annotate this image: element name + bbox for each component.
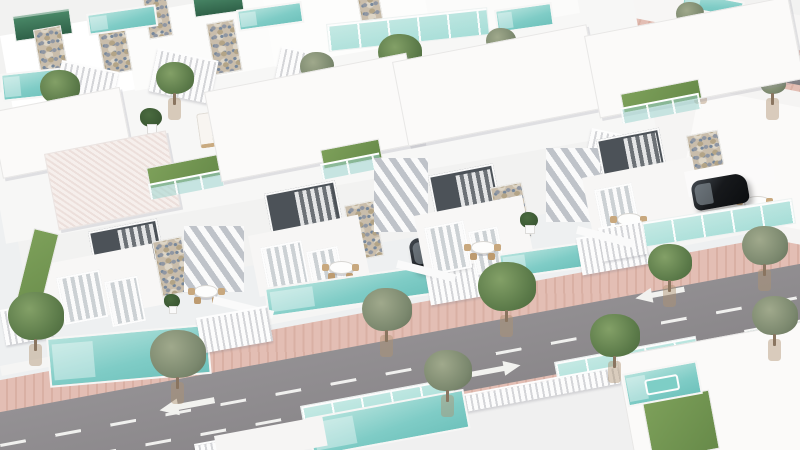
street-tree	[150, 330, 206, 378]
street-tree	[742, 226, 788, 265]
terrace-tree	[156, 62, 194, 94]
villa1-stairs	[184, 226, 244, 292]
street-tree	[752, 296, 798, 335]
street-tree	[648, 244, 692, 281]
potted-plant	[520, 212, 538, 234]
street-tree	[590, 314, 640, 357]
street-tree	[362, 288, 412, 331]
street-tree	[8, 292, 64, 340]
potted-plant	[164, 294, 180, 314]
potted-plant	[140, 108, 162, 134]
architectural-render	[0, 0, 800, 450]
street-tree	[424, 350, 472, 391]
street-tree	[478, 262, 536, 311]
villa3-patio-set	[462, 240, 502, 258]
